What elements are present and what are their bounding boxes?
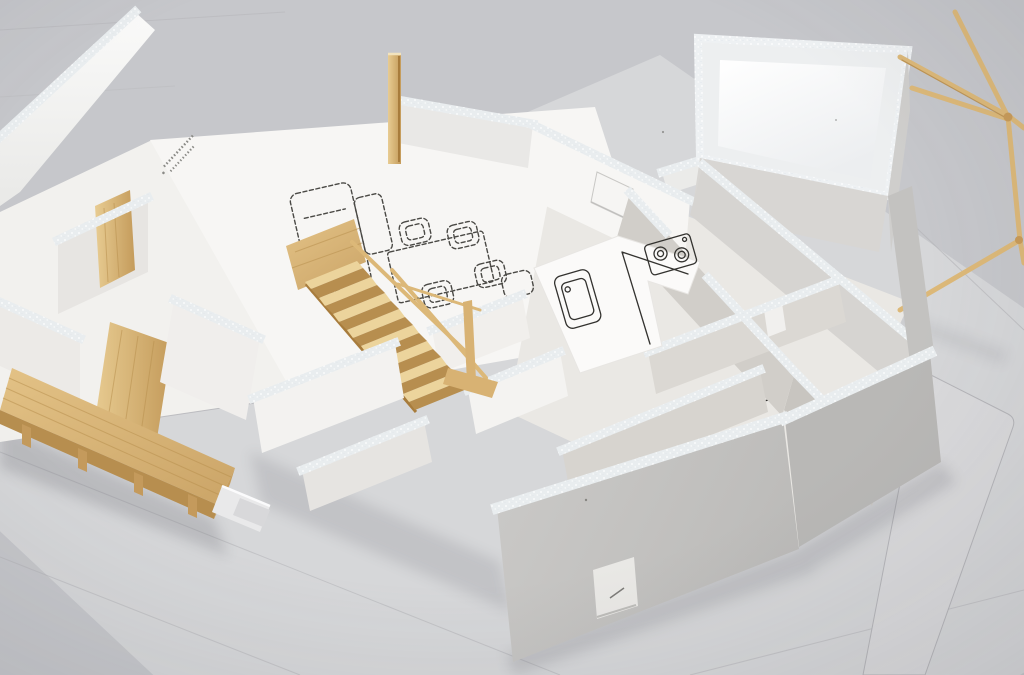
model-photo-canvas: [0, 0, 1024, 675]
vignette: [0, 0, 1024, 675]
photo-finish: [0, 0, 1024, 675]
photo-architectural-model: [0, 0, 1024, 675]
